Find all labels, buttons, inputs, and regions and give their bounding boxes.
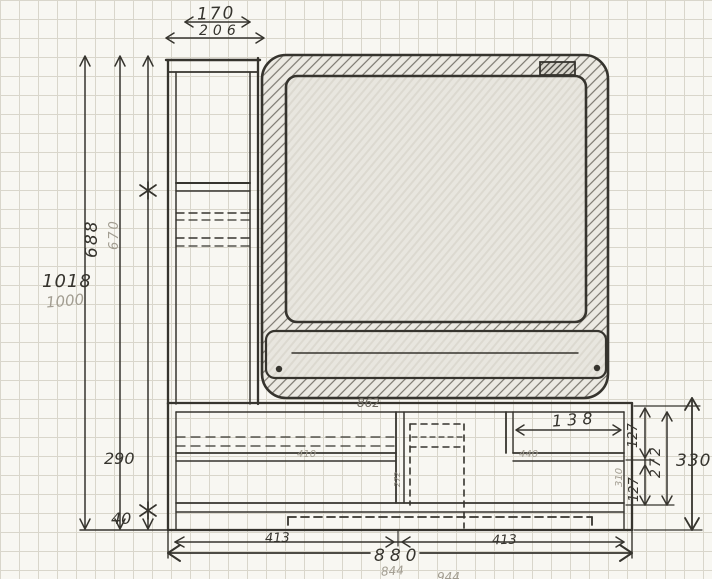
star-mark-upper bbox=[140, 182, 156, 199]
speaker-knob-left bbox=[276, 366, 282, 372]
dim-right-seg-bottom-label: 127 bbox=[628, 477, 641, 502]
sketch-linework bbox=[0, 0, 712, 579]
dim-right-shelf-pencil-label: 440 bbox=[519, 450, 538, 460]
tv-screen bbox=[286, 76, 586, 322]
dim-total-width-pencil-label: 844 bbox=[381, 564, 405, 578]
dim-divider-pencil-label: 272 bbox=[394, 472, 402, 487]
dim-bottom-right-bay-label: 413 bbox=[492, 534, 517, 548]
dim-total-width-label: 880 bbox=[374, 548, 421, 565]
dim-plinth-height-label: 40 bbox=[111, 511, 131, 527]
dim-total-height-label: 1018 bbox=[42, 273, 92, 291]
dim-base-height-label: 290 bbox=[104, 451, 135, 467]
speaker-knob-right bbox=[594, 365, 600, 371]
dim-total-height-pencil-label: 1000 bbox=[45, 292, 84, 310]
tall-cabinet bbox=[166, 58, 260, 404]
hidden-unit-dashed bbox=[288, 424, 592, 530]
dim-right-bay-width-label: 138 bbox=[551, 410, 598, 429]
dim-right-seg-mid-label: 272 bbox=[649, 445, 663, 478]
dim-left-shelf-pencil-label: 410 bbox=[297, 450, 316, 460]
dim-base-inner-width-label: 862 bbox=[357, 397, 380, 409]
star-mark-lower bbox=[140, 502, 156, 519]
dim-bottom-left-bay-label: 413 bbox=[265, 532, 290, 546]
dim-right-seg-top-label: 127 bbox=[627, 423, 640, 448]
tv-control-box bbox=[540, 62, 575, 75]
graph-paper-sheet: 170 206 1018 1000 688 670 290 40 862 410… bbox=[0, 0, 712, 579]
tv-unit bbox=[262, 55, 608, 398]
dim-upper-height-pencil-label: 670 bbox=[108, 219, 121, 250]
dim-side-edge-pencil-label: 310 bbox=[615, 468, 625, 487]
dim-top-inner-width-label: 170 bbox=[197, 5, 236, 23]
dim-right-total-label: 330 bbox=[676, 453, 711, 470]
speaker-panel bbox=[266, 331, 606, 378]
dim-top-outer-width-label: 206 bbox=[199, 24, 241, 38]
dim-upper-height-label: 688 bbox=[84, 220, 101, 258]
dim-total-width-pencil2-label: 944 bbox=[437, 571, 460, 579]
